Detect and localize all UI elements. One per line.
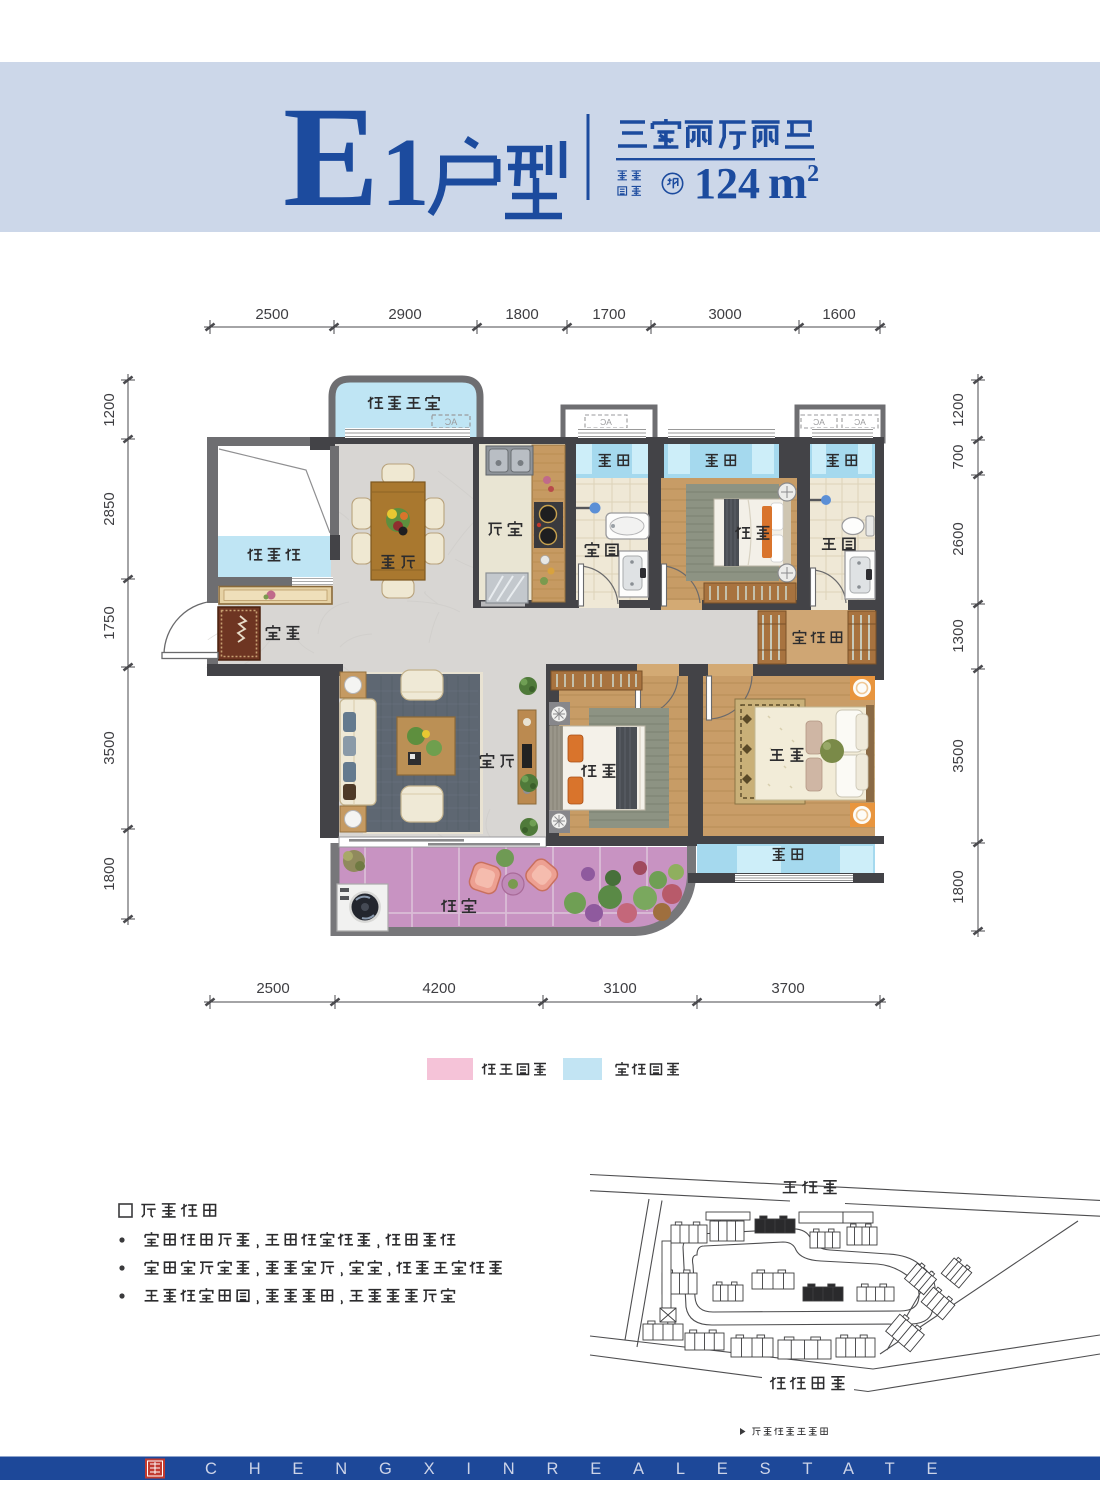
svg-text:2850: 2850 — [101, 492, 118, 525]
svg-text:2500: 2500 — [256, 980, 289, 997]
svg-text:3100: 3100 — [603, 980, 636, 997]
svg-text:1300: 1300 — [950, 619, 967, 652]
svg-text:1700: 1700 — [592, 306, 625, 323]
svg-text:1800: 1800 — [950, 870, 967, 903]
svg-text:3700: 3700 — [771, 980, 804, 997]
svg-text:3500: 3500 — [101, 731, 118, 764]
svg-text:124m2: 124m2 — [694, 157, 819, 209]
svg-text:1750: 1750 — [101, 606, 118, 639]
svg-text:1800: 1800 — [101, 857, 118, 890]
svg-text:1600: 1600 — [822, 306, 855, 323]
svg-text:4200: 4200 — [422, 980, 455, 997]
svg-text:AC: AC — [854, 417, 866, 427]
svg-text:2600: 2600 — [950, 522, 967, 555]
svg-text:3500: 3500 — [950, 739, 967, 772]
svg-text:AC: AC — [444, 417, 457, 427]
svg-text:AC: AC — [813, 417, 825, 427]
svg-text:2900: 2900 — [388, 306, 421, 323]
svg-text:AC: AC — [600, 417, 612, 427]
svg-text:700: 700 — [950, 444, 967, 469]
svg-text:3000: 3000 — [708, 306, 741, 323]
svg-text:1200: 1200 — [950, 393, 967, 426]
svg-text:CHENGXINREALESTATE: CHENGXINREALESTATE — [205, 1460, 969, 1478]
svg-text:1800: 1800 — [505, 306, 538, 323]
svg-text:1200: 1200 — [101, 393, 118, 426]
svg-text:2500: 2500 — [255, 306, 288, 323]
